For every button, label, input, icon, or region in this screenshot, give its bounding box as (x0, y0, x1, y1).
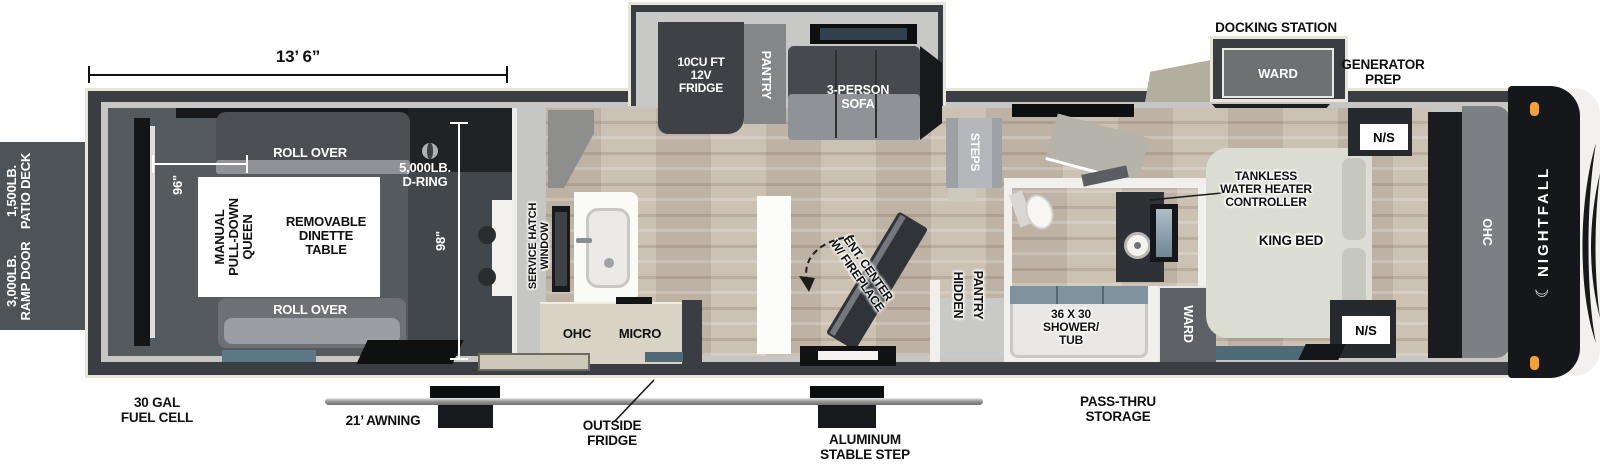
patio-deck-label: 1,500LB. PATIO DECK (5, 143, 39, 239)
crescent-moon-icon: ☾ (1533, 283, 1553, 298)
dinette-area: MANUAL PULL-DOWN QUEEN REMOVABLE DINETTE… (198, 177, 380, 297)
floorplan-canvas: 13’ 6” 1,500LB. PATIO DECK 3,000LB. RAMP… (0, 0, 1600, 464)
ns-top-label: N/S (1373, 130, 1395, 145)
nightstand-bottom-tag: N/S (1342, 316, 1390, 344)
garage-passage-door (492, 200, 512, 296)
pantry-wall (930, 280, 940, 362)
dimension-tick (152, 155, 154, 173)
tankless-label: TANKLESS WATER HEATER CONTROLLER (1206, 170, 1326, 209)
micro-label: MICRO (605, 327, 675, 341)
king-bed-label: KING BED (1231, 234, 1351, 249)
pillow (1342, 158, 1366, 240)
pulldown-queen-label: MANUAL PULL-DOWN QUEEN (213, 181, 273, 293)
hidden-pantry-label-line1: HIDDEN (950, 263, 964, 327)
ns-bottom-label: N/S (1355, 323, 1377, 338)
pass-thru-label: PASS-THRU STORAGE (1056, 395, 1180, 424)
dimension-line-13-6 (88, 74, 508, 76)
bath-sink-drain (1134, 242, 1141, 249)
speaker-icon (478, 226, 496, 244)
ward-slide-label: WARD (1258, 66, 1298, 81)
rollover-bottom-label: ROLL OVER (235, 303, 385, 317)
dimension-label-96: 96" (171, 163, 189, 207)
garage-kitchen-wall (512, 108, 517, 356)
docking-station-wedge (1145, 60, 1211, 102)
dimension-tick-left (88, 66, 90, 83)
ward-closet-label: WARD (1180, 294, 1194, 354)
faucet-icon (576, 238, 592, 243)
marker-light-icon (1530, 356, 1539, 370)
ohc-label: OHC (552, 327, 602, 341)
outside-fridge-pointer-line (608, 376, 660, 424)
fuel-cell-label: 30 GAL FUEL CELL (97, 396, 217, 425)
sink-drain (604, 258, 614, 268)
kitchen-island (757, 196, 791, 354)
garage-platform (356, 340, 463, 364)
speaker-icon (478, 268, 496, 286)
entry-step-main-lower (818, 404, 876, 428)
counter-appliance (682, 300, 702, 364)
dimension-tick (450, 358, 468, 360)
outside-fridge-door (478, 353, 590, 371)
door-swing-arrow (790, 226, 870, 296)
dimension-tick-right (506, 66, 508, 83)
brand-logo: ☾ NIGHTFALL (1532, 107, 1554, 357)
steps-landing (948, 188, 976, 202)
entry-door-step (818, 351, 878, 360)
ramp-door-frame (134, 118, 150, 346)
fridge-label: 10CU FT 12V FRIDGE (662, 56, 740, 95)
pantry-label: PANTRY (758, 40, 772, 110)
entry-step-rear-lower (438, 404, 493, 428)
d-ring-label: 5,000LB. D-RING (378, 161, 472, 189)
kitchen-sink (586, 208, 630, 288)
front-closet (1428, 112, 1462, 358)
dimension-label-98: 98" (434, 219, 452, 263)
generator-prep-label: GENERATOR PREP (1321, 58, 1445, 87)
bedroom-overhead (1012, 104, 1134, 117)
dinette-table-label: REMOVABLE DINETTE TABLE (276, 215, 376, 257)
kitchen-mat (645, 352, 683, 362)
cooktop (616, 297, 652, 304)
stable-step-label: ALUMINUM STABLE STEP (803, 433, 927, 462)
shower-tub-label: 36 X 30 SHOWER/ TUB (1016, 308, 1126, 347)
dimension-line-96 (152, 163, 248, 165)
front-ohc-label: OHC (1479, 207, 1493, 257)
bath-mirror-glass (1156, 209, 1172, 257)
d-ring-icon (422, 143, 438, 159)
hidden-pantry-label-line2: PANTRY (970, 263, 984, 327)
patio-deck: 1,500LB. PATIO DECK 3,000LB. RAMP DOOR (0, 142, 88, 330)
brand-name: NIGHTFALL (1535, 166, 1552, 277)
awning-label: 21’ AWNING (323, 414, 443, 429)
shower-floor (1010, 286, 1148, 304)
nightstand-top-tag: N/S (1360, 124, 1408, 150)
dimension-tick (246, 155, 248, 173)
kitchen-window-glass (555, 212, 567, 286)
shower-seam (1056, 286, 1058, 304)
bedroom-mat-shadow (1298, 344, 1345, 360)
steps-label: STEPS (967, 125, 981, 179)
outside-fridge-label: OUTSIDE FRIDGE (550, 419, 674, 448)
docking-station-label: DOCKING STATION (1194, 21, 1358, 36)
dimension-label-garage-length: 13’ 6” (238, 48, 358, 66)
rollover-top-label: ROLL OVER (235, 146, 385, 160)
sofa-window-glass (820, 28, 907, 40)
sofa-label: 3-PERSON SOFA (802, 84, 914, 111)
ramp-door-label: 3,000LB. RAMP DOOR (5, 233, 39, 329)
garage-mat (222, 350, 316, 362)
dimension-line-98 (458, 122, 460, 360)
shower-seam (1102, 286, 1104, 304)
ward-slideout-cabinet: WARD (1222, 48, 1334, 98)
dimension-tick (450, 122, 468, 124)
